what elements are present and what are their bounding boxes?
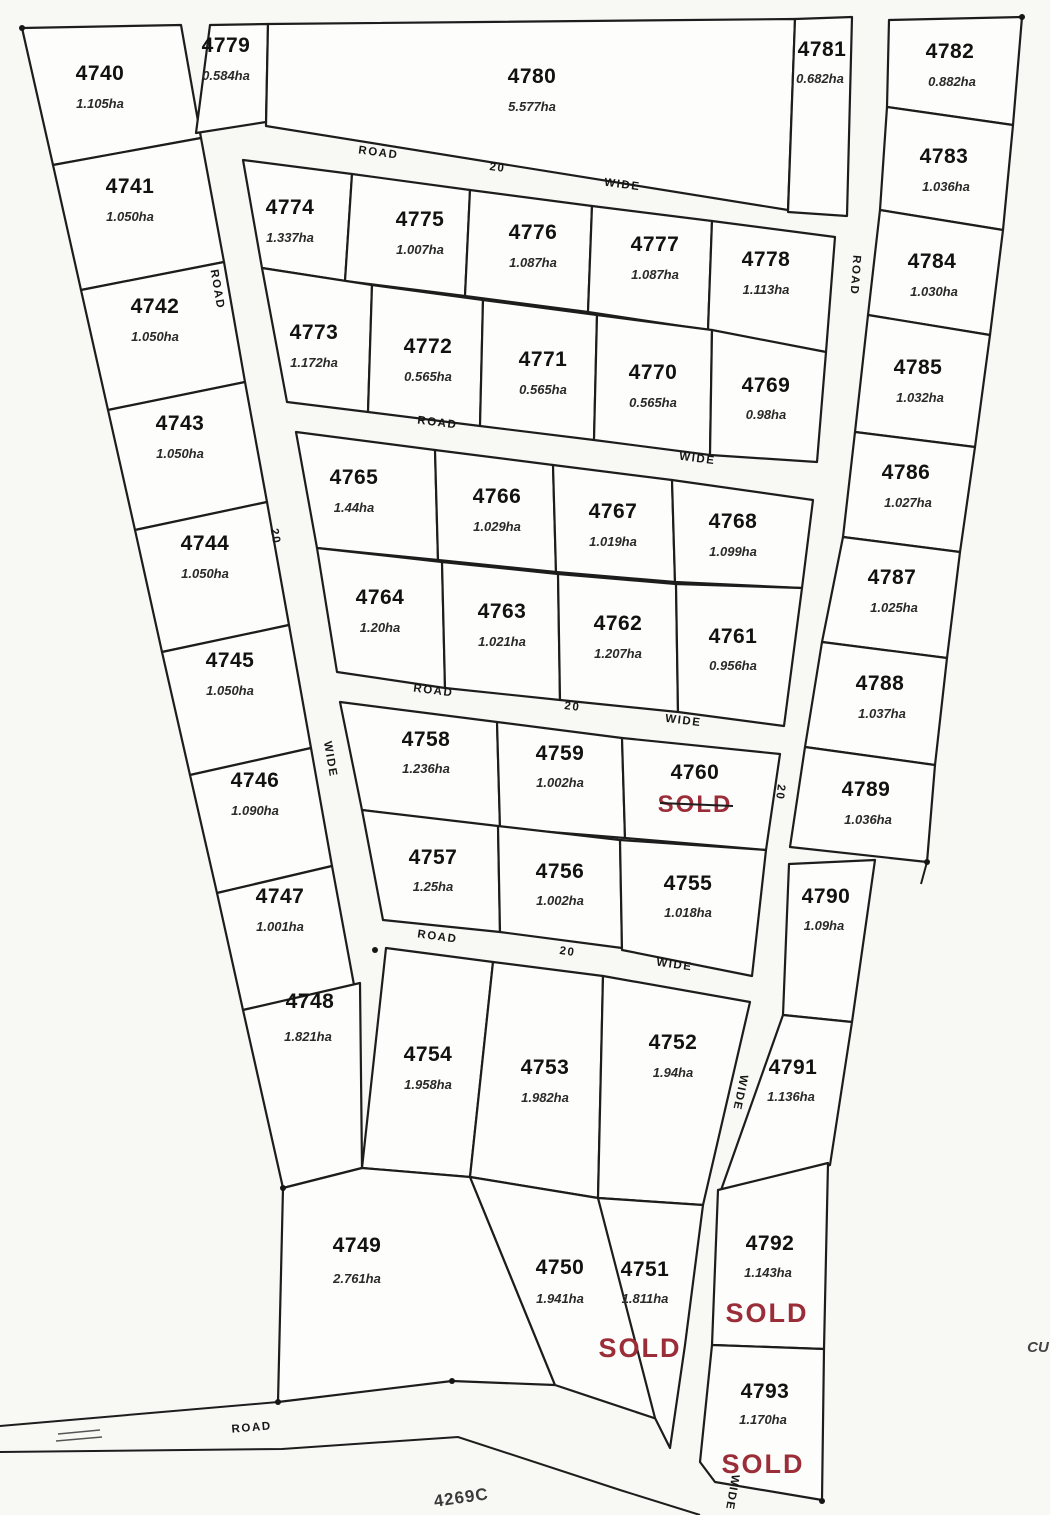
lot-number: 4744 <box>181 532 230 555</box>
road-width-label: 20 <box>773 784 787 801</box>
lot-number: 4755 <box>664 872 713 895</box>
lot-area: 1.958ha <box>404 1077 452 1092</box>
lot-number: 4774 <box>266 196 315 219</box>
lot-number: 4746 <box>231 769 280 792</box>
lot-area: 1.021ha <box>478 634 526 649</box>
sold-label: SOLD <box>725 1298 808 1328</box>
edge-text: CU <box>1027 1339 1050 1356</box>
lot-4774: 4774 1.337ha <box>243 160 352 281</box>
lot-number: 4787 <box>868 566 917 589</box>
lot-4786: 4786 1.027ha <box>843 432 975 552</box>
lot-number: 4757 <box>409 846 458 869</box>
lot-area: 1.170ha <box>739 1412 787 1427</box>
lot-number: 4779 <box>202 34 251 57</box>
lot-4771: 4771 0.565ha <box>480 300 597 440</box>
road-label: ROAD <box>231 1420 272 1435</box>
road-width-label: 20 <box>559 945 577 959</box>
lot-number: 4768 <box>709 510 758 533</box>
lot-number: 4763 <box>478 600 527 623</box>
lot-number: 4772 <box>404 335 453 358</box>
lot-area: 1.207ha <box>594 646 642 661</box>
lot-number: 4741 <box>106 175 155 198</box>
lot-area: 0.882ha <box>928 74 976 89</box>
lot-4761: 4761 0.956ha <box>676 584 802 726</box>
lot-number: 4781 <box>798 38 847 61</box>
lot-area: 0.565ha <box>519 382 567 397</box>
lot-4773: 4773 1.172ha <box>262 268 372 412</box>
lot-area: 1.019ha <box>589 534 637 549</box>
lot-area: 1.037ha <box>858 706 906 721</box>
lot-number: 4748 <box>286 990 335 1013</box>
lot-area: 1.050ha <box>181 566 229 581</box>
lot-4792: 4792 1.143ha SOLD <box>712 1163 828 1349</box>
lot-area: 1.090ha <box>231 803 279 818</box>
lot-number: 4747 <box>256 885 305 908</box>
lot-number: 4793 <box>741 1380 790 1403</box>
road-label: ROAD <box>848 255 863 296</box>
lot-area: 1.007ha <box>396 242 444 257</box>
lot-4764: 4764 1.20ha <box>317 548 445 688</box>
lot-number: 4752 <box>649 1031 698 1054</box>
lot-4784: 4784 1.030ha <box>868 210 1003 335</box>
lot-4762: 4762 1.207ha <box>558 574 678 712</box>
road-wide-label: WIDE <box>321 740 339 778</box>
lot-area: 1.036ha <box>844 812 892 827</box>
lot-number: 4777 <box>631 233 680 256</box>
lot-4790: 4790 1.09ha <box>783 860 875 1022</box>
lot-4781: 4781 0.682ha <box>788 17 852 216</box>
lot-number: 4751 <box>621 1258 670 1281</box>
lot-4793: 4793 1.170ha SOLD <box>700 1345 824 1500</box>
lot-number: 4782 <box>926 40 975 63</box>
lot-4768: 4768 1.099ha <box>672 480 813 588</box>
lot-4783: 4783 1.036ha <box>880 107 1013 230</box>
lot-area: 1.09ha <box>804 918 844 933</box>
lot-area: 1.172ha <box>290 355 338 370</box>
lot-number: 4766 <box>473 485 522 508</box>
bottom-road <box>0 1402 700 1515</box>
lot-area: 0.956ha <box>709 658 757 673</box>
lot-4787: 4787 1.025ha <box>822 537 960 658</box>
lot-number: 4760 <box>671 761 720 784</box>
lot-number: 4742 <box>131 295 180 318</box>
lot-number: 4740 <box>76 62 125 85</box>
subdivision-plan-map: 4740 1.105ha 4741 1.050ha 4742 1.050ha 4… <box>0 0 1050 1515</box>
lot-area: 2.761ha <box>332 1271 381 1286</box>
lot-area: 5.577ha <box>508 99 556 114</box>
lot-area: 1.25ha <box>413 879 453 894</box>
lot-4765: 4765 1.44ha <box>296 432 438 560</box>
lot-number: 4759 <box>536 742 585 765</box>
lot-area: 1.002ha <box>536 893 584 908</box>
lot-area: 0.682ha <box>796 71 844 86</box>
lot-area: 1.001ha <box>256 919 304 934</box>
lot-4777: 4777 1.087ha <box>588 206 712 330</box>
lot-4753: 4753 1.982ha <box>470 962 603 1198</box>
lot-area: 0.98ha <box>746 407 786 422</box>
lot-number: 4758 <box>402 728 451 751</box>
lot-area: 1.030ha <box>910 284 958 299</box>
lot-area: 1.113ha <box>743 282 790 297</box>
lot-4776: 4776 1.087ha <box>465 190 592 312</box>
lot-4766: 4766 1.029ha <box>435 450 556 572</box>
lot-area: 1.44ha <box>334 500 374 515</box>
lot-area: 0.565ha <box>404 369 452 384</box>
lot-4769: 4769 0.98ha <box>710 330 826 462</box>
lot-area: 0.584ha <box>202 68 250 83</box>
lot-area: 1.811ha <box>622 1291 669 1306</box>
lot-area: 1.050ha <box>156 446 204 461</box>
lot-area: 1.099ha <box>709 544 757 559</box>
lot-number: 4764 <box>356 586 405 609</box>
lot-4770: 4770 0.565ha <box>594 315 712 455</box>
lot-4756: 4756 1.002ha <box>498 826 622 948</box>
lot-number: 4786 <box>882 461 931 484</box>
road-width-label: 20 <box>489 161 506 175</box>
lot-number: 4788 <box>856 672 905 695</box>
lot-4755: 4755 1.018ha <box>620 840 766 976</box>
lot-4767: 4767 1.019ha <box>553 465 675 582</box>
lot-4763: 4763 1.021ha <box>442 562 560 700</box>
lot-area: 1.982ha <box>521 1090 569 1105</box>
lot-number: 4762 <box>594 612 643 635</box>
lot-area: 1.025ha <box>870 600 918 615</box>
lot-4748: 4748 1.821ha <box>243 983 362 1188</box>
lot-4785: 4785 1.032ha <box>855 315 990 447</box>
lot-4760: 4760 SOLD <box>622 738 780 850</box>
lot-number: 4745 <box>206 649 255 672</box>
plan-number: 4269C <box>433 1484 490 1510</box>
lot-number: 4790 <box>802 885 851 908</box>
lot-number: 4756 <box>536 860 585 883</box>
lot-area: 1.036ha <box>922 179 970 194</box>
lot-area: 1.337ha <box>266 230 314 245</box>
lot-area: 1.032ha <box>896 390 944 405</box>
lot-number: 4761 <box>709 625 758 648</box>
lot-number: 4792 <box>746 1232 795 1255</box>
lot-area: 1.136ha <box>767 1089 815 1104</box>
lot-number: 4770 <box>629 361 678 384</box>
lot-number: 4776 <box>509 221 558 244</box>
lot-4789: 4789 1.036ha <box>790 747 935 862</box>
lot-number: 4767 <box>589 500 638 523</box>
lot-4775: 4775 1.007ha <box>345 174 470 296</box>
lot-4758: 4758 1.236ha <box>340 702 500 828</box>
lot-4788: 4788 1.037ha <box>805 642 947 765</box>
lot-number: 4778 <box>742 248 791 271</box>
lot-number: 4771 <box>519 348 568 371</box>
lot-area: 1.050ha <box>206 683 254 698</box>
lot-number: 4780 <box>508 65 557 88</box>
lot-area: 1.002ha <box>536 775 584 790</box>
subdivision-plan-page: 4740 1.105ha 4741 1.050ha 4742 1.050ha 4… <box>0 0 1050 1515</box>
illegible-annotation <box>56 1430 102 1441</box>
lot-area: 0.565ha <box>629 395 677 410</box>
lot-area: 1.029ha <box>473 519 521 534</box>
lot-number: 4753 <box>521 1056 570 1079</box>
lot-number: 4789 <box>842 778 891 801</box>
lot-area: 1.236ha <box>402 761 450 776</box>
lot-4772: 4772 0.565ha <box>368 285 483 426</box>
sold-label: SOLD <box>598 1333 681 1363</box>
lot-area: 1.94ha <box>653 1065 693 1080</box>
lot-number: 4791 <box>769 1056 818 1079</box>
lot-4779: 4779 0.584ha <box>196 24 268 133</box>
lot-area: 1.050ha <box>106 209 154 224</box>
boundary-spur <box>921 862 927 884</box>
lot-area: 1.821ha <box>284 1029 332 1044</box>
lot-area: 1.050ha <box>131 329 179 344</box>
lot-area: 1.105ha <box>76 96 124 111</box>
lot-number: 4773 <box>290 321 339 344</box>
lot-number: 4754 <box>404 1043 453 1066</box>
lot-area: 1.941ha <box>536 1291 584 1306</box>
lot-area: 1.143ha <box>744 1265 792 1280</box>
lot-area: 1.018ha <box>664 905 712 920</box>
lot-4759: 4759 1.002ha <box>497 722 625 838</box>
lot-area: 1.20ha <box>360 620 400 635</box>
lot-number: 4750 <box>536 1256 585 1279</box>
lot-area: 1.087ha <box>509 255 557 270</box>
lot-number: 4743 <box>156 412 205 435</box>
lot-number: 4783 <box>920 145 969 168</box>
lot-4757: 4757 1.25ha <box>362 810 500 932</box>
lot-number: 4775 <box>396 208 445 231</box>
lot-number: 4784 <box>908 250 957 273</box>
lot-number: 4765 <box>330 466 379 489</box>
lot-area: 1.027ha <box>884 495 932 510</box>
road-width-label: 20 <box>564 700 581 714</box>
lot-number: 4785 <box>894 356 943 379</box>
lot-number: 4749 <box>333 1234 382 1257</box>
road-label: ROAD <box>417 928 459 945</box>
lot-area: 1.087ha <box>631 267 679 282</box>
lot-number: 4769 <box>742 374 791 397</box>
